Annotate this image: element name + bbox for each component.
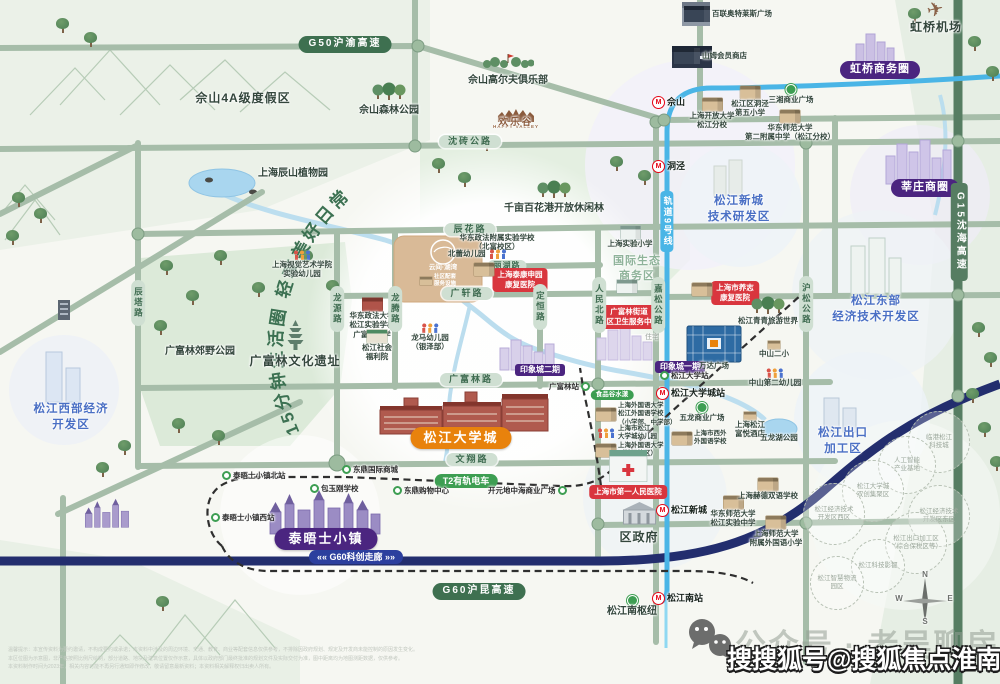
kaiyuan-plaza-stop: 开元地中海商业广场 [488,486,567,495]
chenta-road-label: 辰塔路 [131,280,145,326]
gfl-road-label-label: 广富林路 [440,373,502,386]
shanghai-open-univ-icon [702,98,722,111]
sjdx-tram-stop: 松江大学站 [660,371,709,380]
dongjing-metro-station: 洞泾 [652,160,685,173]
shnu-foreign-primary-icon [766,516,786,529]
first-peoples-hospital-icon [609,450,647,485]
g60-corridor-badge: «« G60科创走廊 »» [309,550,403,564]
zone-film-capital-label: 松江科技影都 [859,562,898,570]
kaiyuan-plaza-stop-label: 开元地中海商业广场 [488,486,556,495]
xiwai-school: 上海市西外外国语学校 [672,430,727,447]
beilei-kindergarten-label: 北蕾幼儿园 [448,249,486,258]
sjxc-tech-zone: 松江新城技术研发区 [708,194,771,225]
tram-stop-icon [393,486,402,495]
sjdxc-metro-station: 松江大学城站 [656,387,725,400]
project-services: 社区配套服务设施 [420,274,456,288]
botanical-lake [189,169,255,197]
longma-kindergarten-label: 龙马幼儿园（银泽部） [411,333,449,352]
hongqiao-airport-label: 虹桥机场 [910,20,962,35]
sj-west-zone-label: 松江西部经济开发区 [34,402,109,433]
zone-edz-west: 松江经济技术开发区西区 [803,483,865,545]
tree-icon [12,192,25,207]
zhongshan-2nd-kindergarten-label: 中山第二幼儿园 [749,378,802,387]
hongqiao-airport-icon: ✈ [925,0,947,22]
shanghai-open-univ: 上海开放大学松江分校 [690,98,735,130]
sheshan-resort-label-label: 佘山4A级度假区 [195,91,290,106]
fuyue-hotel-icon [744,412,756,420]
qianmu-baihua-forest-label: 千亩百花港开放休闲林 [504,203,604,216]
sj-export-zone-label: 松江出口加工区 [818,426,868,457]
disclaimer-line-2: 本区位图为示意图，非严格按照比例尺绘制，部分道路、地块及建筑位置仅作示意，具体以… [8,655,718,664]
hede-school: 上海赫德双语学校 [738,478,798,500]
sams-club-label: 山姆会员商店 [702,51,747,60]
wenxiang-road-label: 文翔路 [446,453,497,466]
dongding-intl-stop: 东鼎国际商城 [342,465,398,474]
xiwai-school-label: 上海市西外外国语学校 [694,430,727,447]
sjxc-tech-zone-label: 松江新城技术研发区 [708,194,771,225]
green-dot-icon [697,402,708,413]
sams-club-icon [674,48,700,64]
ecnu-sj-high: 华东师范大学松江实验中学 [711,496,756,528]
bailian-outlet-icon [684,6,710,22]
tram-stop-icon [211,513,220,522]
baoyugang-school-stop-label: 包玉刚学校 [321,484,359,493]
zone-edz-west-label: 松江经济技术开发区西区 [815,506,854,523]
metro-station-icon [652,592,665,605]
tree-icon [84,32,97,47]
sjdxc-badge-label: 松江大学城 [410,427,511,449]
beilei-kindergarten: 北蕾幼儿园 [448,249,508,259]
chenshan-botanical-garden: 上海辰山植物园 [258,168,328,181]
tree-icon [172,418,185,433]
gfl-ruins: 广富林文化遗址 [249,320,340,369]
gfl-health-building [617,280,637,293]
qingqing-tourism-world-icon [748,296,788,316]
sheshan-forest-park: 佘山森林公园 [359,82,419,117]
metro-line9-label: 轨道9号线 [660,191,673,252]
sh-experimental-primary-icon [620,226,640,239]
happy-valley-label-label: 欢乐谷 [499,117,534,129]
project-services-icon [420,277,432,285]
sheshan-resort-label: 佘山4A级度假区 [195,91,290,106]
metro-station-icon [656,387,669,400]
first-peoples-hospital: 上海市第一人民医院 [589,450,667,499]
longteng-road-label-label: 龙腾路 [388,286,402,332]
shanghai-open-univ-label: 上海开放大学松江分校 [690,111,735,130]
yangzhi-building [692,283,712,296]
sheshan-metro-station-label: 佘山 [667,97,685,108]
dongjing-metro-station-label: 洞泾 [667,161,685,172]
tree-icon [96,462,109,477]
tree-icon [118,440,131,455]
shnu-foreign-primary-label: 上海师范大学附属外国语小学 [750,529,803,548]
district-government: 区政府 [619,500,658,545]
thames-north-stop-label: 泰晤士小镇北站 [233,471,286,480]
sjdxc-kindergarten: 上海市松江大学城幼儿园 [596,425,657,442]
longteng-road-label: 龙腾路 [388,286,402,332]
bailian-outlet: 百联奥特莱斯广场 [684,6,772,22]
longyuan-road-label: 龙源路 [330,286,344,332]
residential-label: 住宅 [645,334,659,343]
gfl-tram-stop: 广富林站 [549,382,590,391]
wanda-plaza-label: 万达广场 [699,361,729,370]
tree-icon [252,282,265,297]
hongqiao-airport: ✈虹桥机场 [910,0,962,35]
tree-icon [966,388,979,403]
sj-east-zone: 松江东部经济技术开发区 [832,294,920,325]
dingheng-road-label: 定恒路 [533,284,547,330]
sisu-foreign-school-label: 上海外国语大学松江外国语学校（小学部、中学部） [618,402,677,427]
longma-kindergarten: 龙马幼儿园（银泽部） [411,323,449,352]
zhongshan-2nd-primary-icon [768,341,780,349]
shenzhuan-road-label: 沈砖公路 [439,135,501,148]
bailian-outlet-label: 百联奥特莱斯广场 [712,9,772,18]
sohu-watermark-text: 搜搜狐号@搜狐焦点淮南站 [727,640,1000,676]
ecupl-sj-school-icon [362,298,382,311]
sjxc-metro-station-label: 松江新城 [671,505,707,516]
sjxc-metro-station: 松江新城 [656,504,707,517]
tree-icon [984,352,997,367]
jiasong-road-label-label: 嘉松公路 [651,277,665,333]
tree-icon [986,66,999,81]
sjn-metro-station: 松江南站 [652,592,703,605]
thames-castle-small [85,499,128,528]
compass-n-label: N [922,570,928,580]
sh-experimental-primary-label: 上海实验小学 [608,239,653,248]
sj-west-zone: 松江西部经济开发区 [34,402,109,433]
wulong-plaza-stop-label: 五龙商业广场 [680,413,725,422]
ecnu-2nd-high-label: 华东师范大学第二附属中学（松江分校） [745,123,835,142]
gfl-country-park: 广富林郊野公园 [165,346,235,359]
compass-w-label: W [895,594,903,604]
sjdxc-kindergarten-label: 上海市松江大学城幼儿园 [618,425,657,442]
map-canvas: 15分钟生活圈 轻享美好日常 [0,0,1000,684]
sj-east-zone-label: 松江东部经济技术开发区 [832,294,920,325]
sjn-hub: 松江南枢纽 [607,595,657,619]
sheshan-golf-club: 佘山高尔夫俱乐部 [468,52,548,87]
tree-icon [990,456,1000,471]
shnu-foreign-primary: 上海师范大学附属外国语小学 [750,516,803,548]
guangxuan-road-label: 广轩路 [441,287,492,300]
tram-stop-icon [310,484,319,493]
zhongshan-2nd-primary-label: 中山二小 [759,349,789,358]
tree-icon [186,290,199,305]
g50-highway-label: G50沪渝高速 [299,36,392,53]
compass-w: W [895,594,903,604]
visual-arts-kindergarten-label: 上海视觉艺术学院实验幼儿园 [272,260,332,279]
sjdx-tram-stop-label: 松江大学站 [671,371,709,380]
tree-icon [156,596,169,611]
tram-stop-icon [558,486,567,495]
roadside-building [58,300,70,320]
hede-school-label: 上海赫德双语学校 [738,491,798,500]
ecnu-sj-high-label: 华东师范大学松江实验中学 [711,509,756,528]
disclaimer-line-3: 本资料制作时间为2023年，相关内容可能不再另行通知即作修改，敬请留意最新资料；… [8,663,718,672]
metro-station-icon [652,96,665,109]
green-dot-icon [786,84,797,95]
sheshan-forest-park-icon [369,82,409,105]
green-dot-icon [627,595,638,606]
tram-stop-icon [342,465,351,474]
project-services-label: 社区配套服务设施 [434,274,456,288]
baoyugang-school-stop: 包玉刚学校 [310,484,359,493]
thames-town-badge-label: 泰晤士小镇 [274,528,377,550]
wanda-plaza-label-label: 万达广场 [699,361,729,370]
sisu-foreign-school-icon [596,408,616,421]
sheshan-golf-club-label: 佘山高尔夫俱乐部 [468,75,548,88]
metro-line9-label-label: 轨道9号线 [660,191,673,252]
dongding-intl-stop-label: 东鼎国际商城 [353,465,398,474]
qianmu-baihua-forest: 千亩百花港开放休闲林 [504,180,604,215]
chenta-road-label-label: 辰塔路 [131,280,145,326]
metro-station-icon [652,160,665,173]
yangzhi-building-icon [692,283,712,296]
tree-icon [610,156,623,171]
thames-town-badge: 泰晤士小镇 [274,528,377,550]
hede-school-icon [758,478,778,491]
gfl-ruins-icon [285,320,305,354]
sams-club: 山姆会员商店 [674,48,747,64]
wulong-lake-park: 五龙湖公园 [760,433,798,442]
tree-icon [154,320,167,335]
tree-icon [968,36,981,51]
sanxiang-plaza-label: 三湘商业广场 [769,95,814,104]
zone-smart-logistics: 松江智慧物流园区 [810,556,864,610]
g60-corridor-badge-label: «« G60科创走廊 »» [309,550,403,564]
dongjing-5th-primary-icon [740,86,760,99]
renminbei-road-label-label: 人民北路 [592,277,606,333]
food-valley-badge-label: 食品谷水漾 [591,390,634,400]
visual-arts-kindergarten-icon [292,250,312,260]
sjdxc-metro-station-label: 松江大学城站 [671,388,725,399]
compass-e: E [947,594,952,604]
tram-stop-icon [660,371,669,380]
longyuan-road-label-label: 龙源路 [330,286,344,332]
dingheng-road-label-label: 定恒路 [533,284,547,330]
sanxiang-plaza: 三湘商业广场 [769,84,814,104]
sjdxc-badge: 松江大学城 [410,427,511,449]
tree-icon [972,322,985,337]
zhongshan-2nd-kindergarten-icon [765,368,785,378]
sheshan-metro-station: 佘山 [652,96,685,109]
g15-highway-label: G15沈海高速 [951,183,968,281]
district-government-icon [620,500,658,530]
qingqing-tourism-world: 松江青青旅游世界 [738,296,798,326]
visual-arts-kindergarten: 上海视觉艺术学院实验幼儿园 [272,250,332,279]
tree-icon [56,18,69,33]
tram-stop-icon [222,471,231,480]
food-valley-badge: 食品谷水漾 [591,390,634,400]
sj-welfare-house-label: 松江社会福利院 [362,343,392,362]
tree-icon [458,172,471,187]
sisu-foreign-school: 上海外国语大学松江外国语学校（小学部、中学部） [596,402,677,427]
sj-welfare-house-icon [367,330,387,343]
g60-highway-label: G60沪昆高速 [433,583,526,600]
tree-icon [160,260,173,275]
qingqing-tourism-world-label: 松江青青旅游世界 [738,316,798,325]
tram-stop-icon [581,382,590,391]
xiwai-school-icon [672,432,692,445]
thames-west-stop-label: 泰晤士小镇西站 [222,513,275,522]
qianmu-baihua-forest-icon [534,180,574,203]
shenzhuan-road-label-label: 沈砖公路 [439,135,501,148]
thames-north-stop: 泰晤士小镇北站 [222,471,286,480]
thames-west-stop: 泰晤士小镇西站 [211,513,275,522]
g50-highway-label-label: G50沪渝高速 [299,36,392,53]
renminbei-road-label: 人民北路 [592,277,606,333]
ecnu-2nd-high: 华东师范大学第二附属中学（松江分校） [745,110,835,142]
longma-kindergarten-icon [420,323,440,333]
zhongshan-2nd-kindergarten: 中山第二幼儿园 [749,368,802,387]
gfl-tram-stop-label: 广富林站 [549,382,579,391]
wenxiang-road-label-label: 文翔路 [446,453,497,466]
guangxuan-road-label-label: 广轩路 [441,287,492,300]
sheshan-forest-park-label: 佘山森林公园 [359,105,419,118]
sj-welfare-house: 松江社会福利院 [362,330,392,362]
tree-icon [638,170,651,185]
zone-univ-innovation-label: 松江大学城双创集聚区 [857,483,890,500]
zone-smart-logistics-label: 松江智慧物流园区 [818,575,857,592]
husong-road-label-label: 沪松公路 [799,276,813,332]
residential-label-label: 住宅 [645,334,659,343]
xinzhuang-business-circle: 莘庄商圈 [891,179,959,197]
gfl-country-park-label: 广富林郊野公园 [165,346,235,359]
dongding-mall-stop-label: 东鼎购物中心 [404,486,449,495]
sj-export-zone: 松江出口加工区 [818,426,868,457]
wanda-building-icon [687,326,741,362]
chenshan-botanical-garden-label: 上海辰山植物园 [258,168,328,181]
gfl-road-label: 广富林路 [440,373,502,386]
footer-disclaimer: 温馨提示：本宣传资料为要约邀请，不构成要约或承诺；本资料中涉及的周边环境、交通、… [8,646,718,672]
happy-valley-label: 欢乐谷 [499,117,534,129]
ecnu-2nd-high-icon [780,110,800,123]
dongding-mall-stop: 东鼎购物中心 [393,486,449,495]
beilei-kindergarten-icon [488,249,508,259]
sjdxc-kindergarten-icon [596,428,616,438]
tree-icon [212,430,225,445]
tree-icon [978,422,991,437]
project-name: 云间·湖湾 [429,264,457,272]
first-peoples-hospital-label: 上海市第一人民医院 [589,485,667,499]
compass-n: N [922,570,928,580]
sjn-hub-label: 松江南枢纽 [607,606,657,619]
tree-icon [432,158,445,173]
metro-station-icon [656,504,669,517]
tree-icon [214,250,227,265]
zhongshan-2nd-primary: 中山二小 [759,341,789,358]
tree-icon [34,208,47,223]
taikang-building-icon [474,263,494,276]
husong-road-label: 沪松公路 [799,276,813,332]
jiasong-road-label: 嘉松公路 [651,277,665,333]
yinxiangcheng-phase2-label: 印象城二期 [515,364,565,376]
tree-icon [6,230,19,245]
xinzhuang-business-circle-label: 莘庄商圈 [891,179,959,197]
yinxiangcheng-phase2: 印象城二期 [515,364,565,376]
gfl-ruins-label: 广富林文化遗址 [249,354,340,369]
disclaimer-line-1: 温馨提示：本宣传资料为要约邀请，不构成要约或承诺；本资料中涉及的周边环境、交通、… [8,646,718,655]
sheshan-golf-club-icon [482,52,534,75]
hongqiao-business-circle: 虹桥商务圈 [840,61,920,79]
hongqiao-business-circle-label: 虹桥商务圈 [840,61,920,79]
project-name-label: 云间·湖湾 [429,264,457,272]
gfl-health-building-icon [617,280,637,293]
g15-highway-label-label: G15沈海高速 [951,183,968,281]
zone-ai-base-label: 人工智能产业基地 [894,457,920,474]
district-government-label: 区政府 [619,530,658,545]
sjn-metro-station-label: 松江南站 [667,593,703,604]
wulong-plaza-stop: 五龙商业广场 [680,402,725,422]
g60-highway-label-label: G60沪昆高速 [433,583,526,600]
taikang-building [474,263,494,276]
wulong-lake-park-label: 五龙湖公园 [760,433,798,442]
sh-experimental-primary: 上海实验小学 [608,226,653,248]
compass-e-label: E [947,594,952,604]
